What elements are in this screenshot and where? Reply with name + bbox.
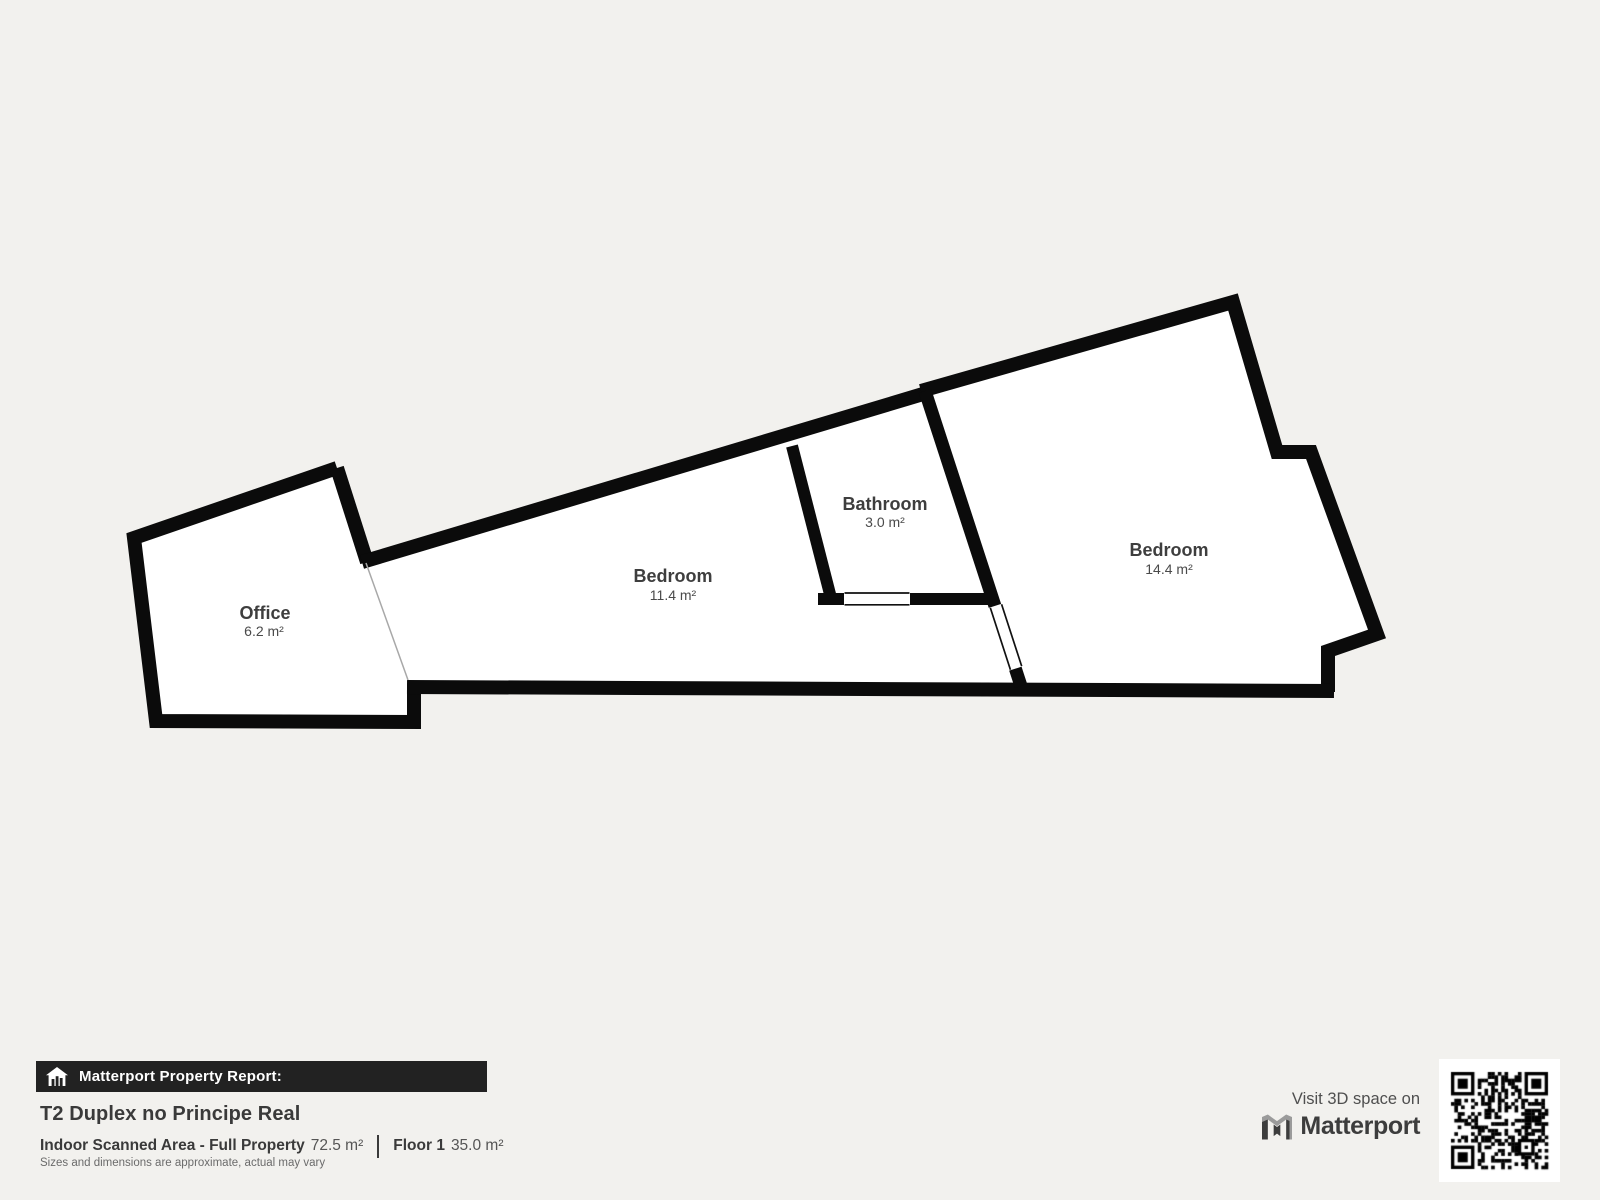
- stat-label-floor-1: Floor 1: [393, 1137, 445, 1155]
- stats-divider: [377, 1135, 379, 1158]
- room-bedroom-1: [364, 394, 1021, 687]
- visit-3d-text: Visit 3D space on: [1292, 1090, 1420, 1109]
- property-title: T2 Duplex no Principe Real: [40, 1103, 300, 1126]
- floorplan: Office 6.2 m² Bedroom 11.4 m² Bathroom 3…: [0, 0, 1600, 1200]
- matterport-wordmark: Matterport: [1300, 1112, 1420, 1141]
- stat-value-full-property: 72.5 m²: [311, 1137, 364, 1155]
- property-report-page: Office 6.2 m² Bedroom 11.4 m² Bathroom 3…: [0, 0, 1600, 1200]
- wall-bottom: [407, 687, 1334, 691]
- room-office: [134, 468, 414, 722]
- room-area-office: 6.2 m²: [244, 623, 284, 639]
- qr-code: [1439, 1059, 1560, 1182]
- room-area-bedroom-2: 14.4 m²: [1145, 561, 1193, 577]
- door-opening-bathroom: [844, 592, 910, 607]
- room-label-bathroom: Bathroom: [843, 494, 928, 514]
- disclaimer-text: Sizes and dimensions are approximate, ac…: [40, 1157, 325, 1169]
- report-bar-label: Matterport Property Report:: [79, 1068, 282, 1085]
- scan-stats: Indoor Scanned Area - Full Property 72.5…: [40, 1134, 504, 1158]
- room-area-bathroom: 3.0 m²: [865, 514, 905, 530]
- report-header-bar: Matterport Property Report:: [36, 1061, 487, 1092]
- room-label-bedroom-1: Bedroom: [633, 566, 712, 586]
- room-area-bedroom-1: 11.4 m²: [650, 587, 697, 603]
- stat-label-full-property: Indoor Scanned Area - Full Property: [40, 1137, 305, 1155]
- matterport-brand: Matterport: [1262, 1112, 1420, 1141]
- room-label-office: Office: [239, 603, 290, 623]
- matterport-logo-icon: [1262, 1114, 1292, 1140]
- qr-panel: [1439, 1059, 1560, 1182]
- stat-value-floor-1: 35.0 m²: [451, 1137, 504, 1155]
- house-chart-icon: [46, 1067, 68, 1086]
- room-label-bedroom-2: Bedroom: [1129, 540, 1208, 560]
